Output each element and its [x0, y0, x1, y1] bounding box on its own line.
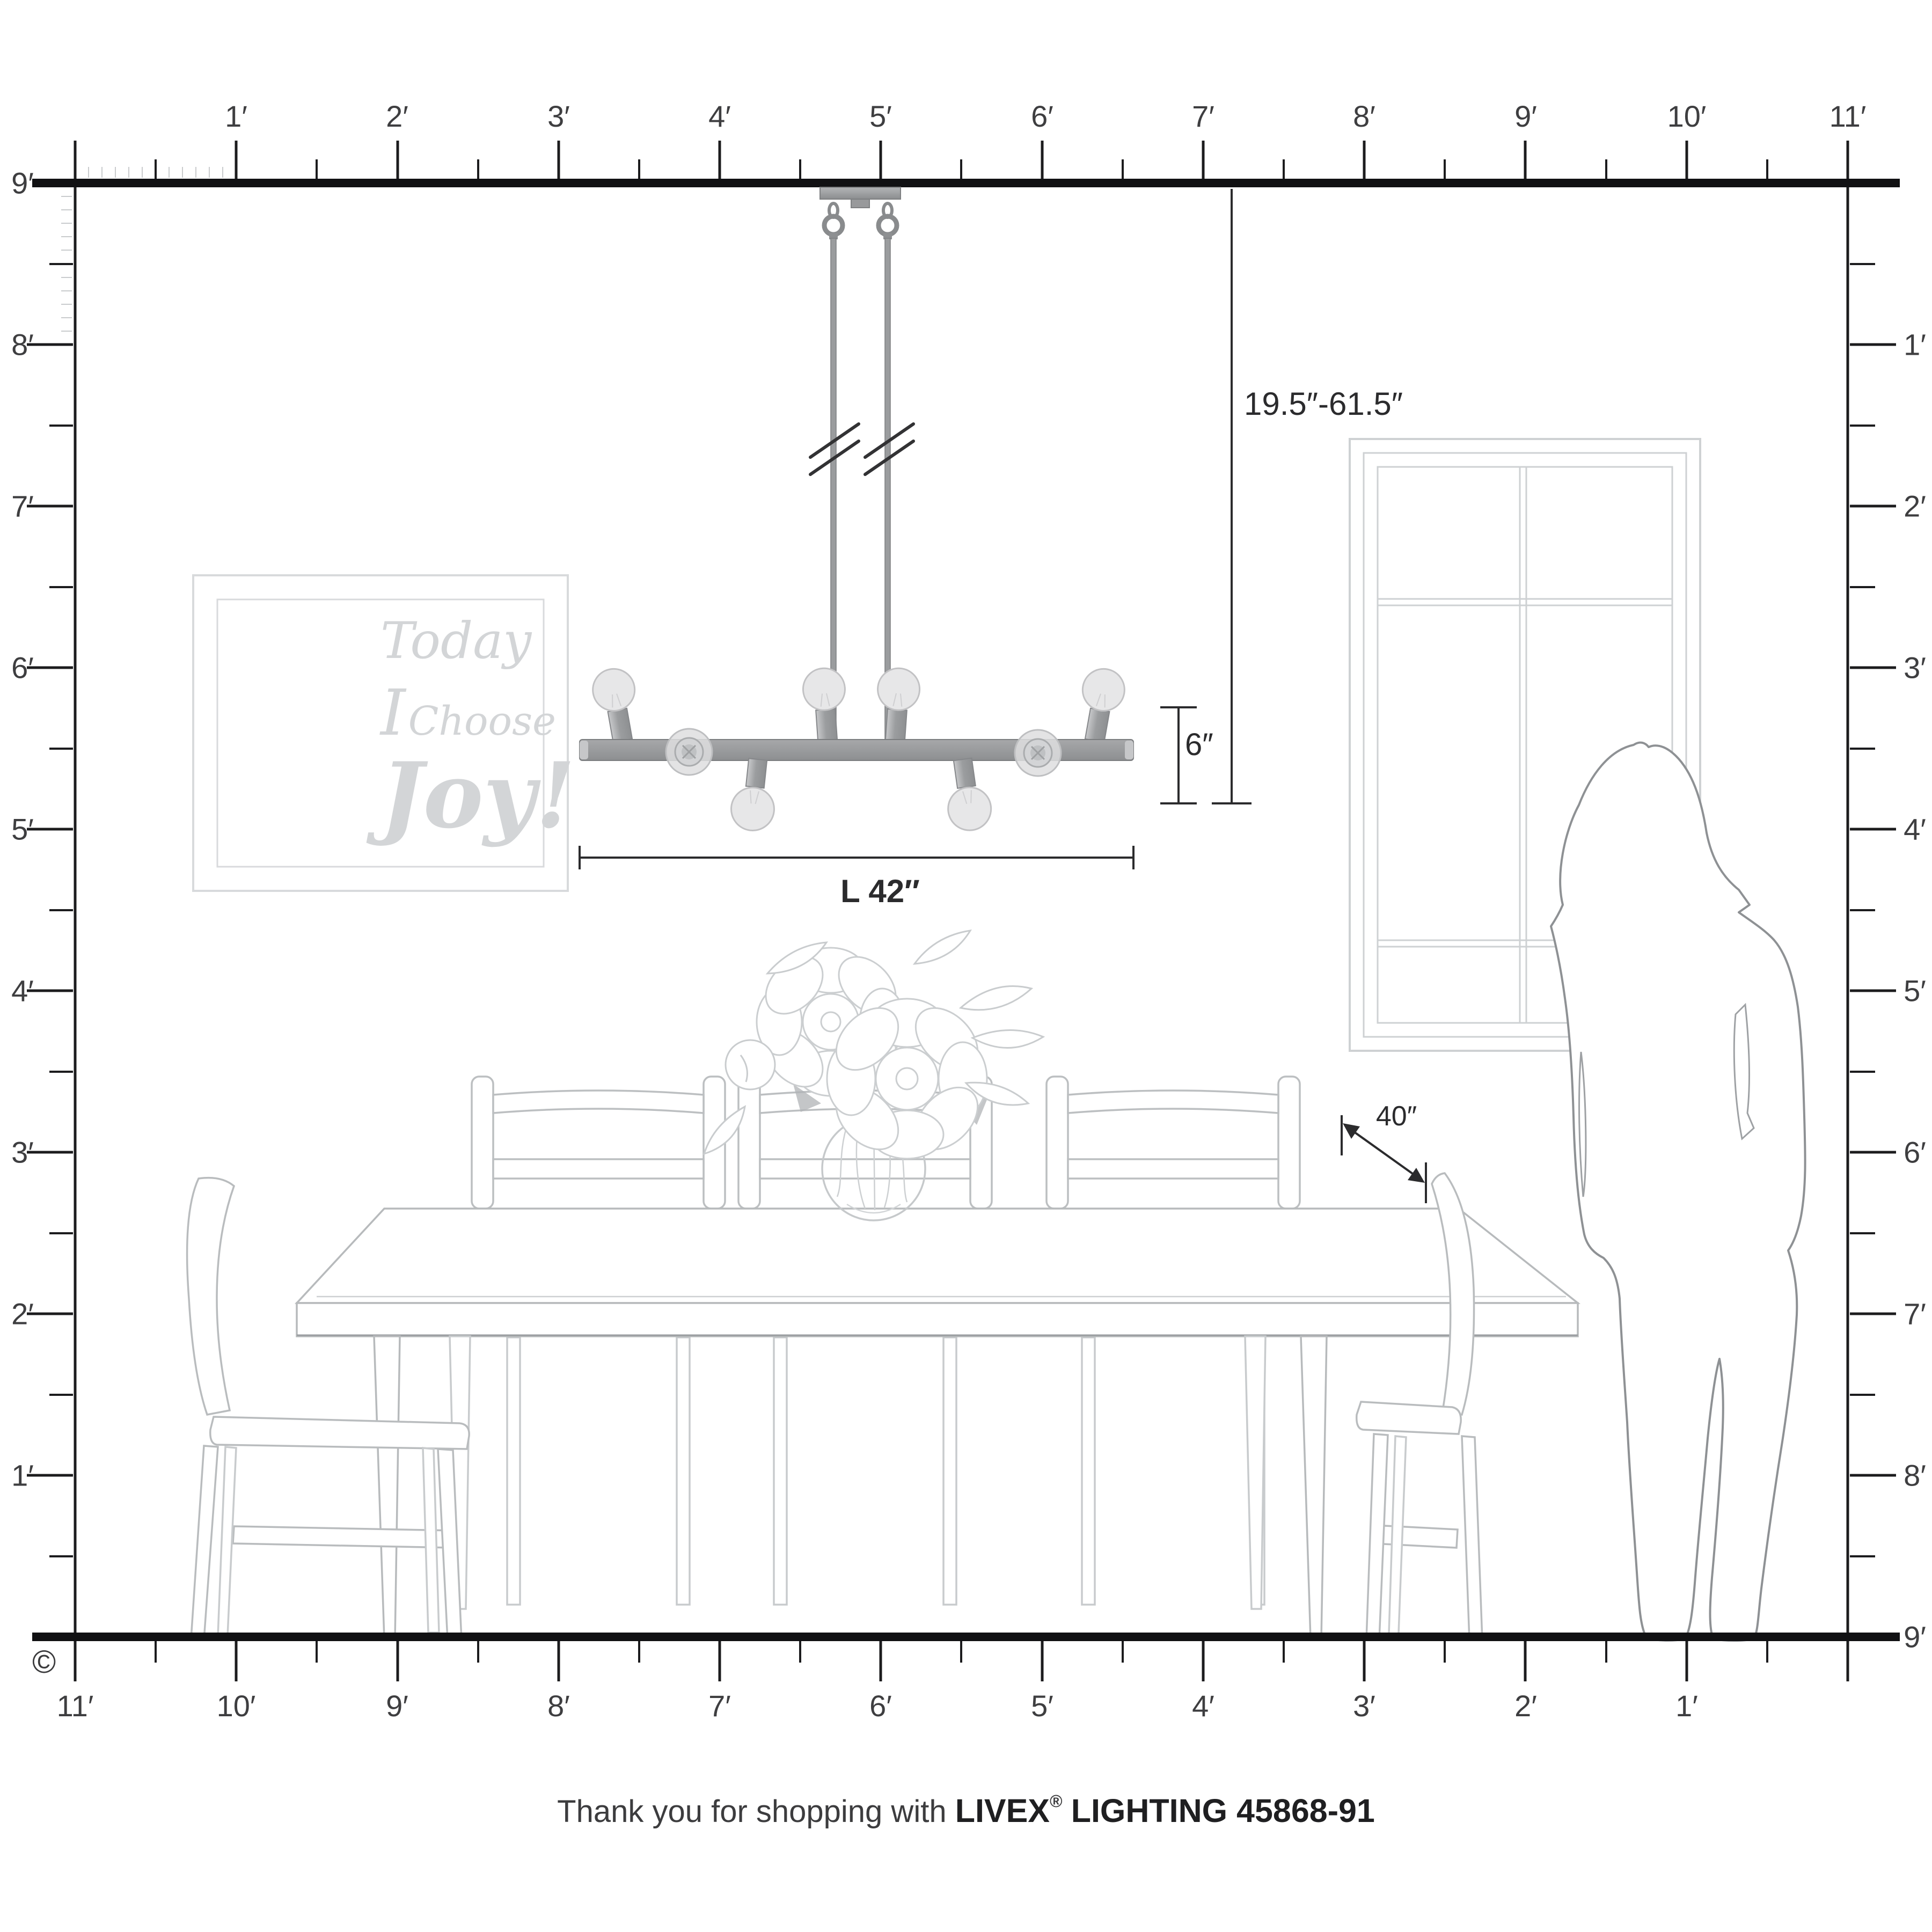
ruler-label: 8′ [11, 327, 34, 362]
ruler-label: 7′ [708, 1688, 731, 1723]
art-word-i: I [380, 676, 406, 750]
linear-chandelier [580, 187, 1133, 833]
front-facing-bulb [666, 729, 712, 775]
ruler-label: 3′ [547, 99, 570, 134]
hang-range-dimension [1212, 189, 1252, 803]
ruler-label: 7′ [1904, 1297, 1926, 1331]
ruler-label: 5′ [869, 99, 892, 134]
ruler-label: 2′ [1514, 1688, 1537, 1723]
ruler-label: 11′ [1829, 99, 1867, 134]
ruler-ticks-left [27, 264, 73, 1556]
fixture-length-label: L 42″ [840, 873, 920, 910]
up-bulb [1074, 665, 1128, 744]
ruler-label: 1′ [1904, 327, 1926, 362]
ruler-label: 8′ [547, 1688, 570, 1723]
up-bulb [802, 667, 848, 742]
down-bulb [729, 757, 779, 833]
back-chair-middle [738, 1077, 992, 1605]
ruler-label: 3′ [1904, 650, 1926, 685]
copyright-symbol: © [32, 1643, 56, 1680]
table-leg [1245, 1336, 1265, 1609]
hang-rings [824, 203, 897, 239]
ruler-label: 11′ [57, 1688, 94, 1723]
ruler-label: 9′ [1904, 1620, 1926, 1655]
ruler-ticks-top [75, 141, 1848, 179]
ruler-label: 10′ [217, 1688, 256, 1723]
woman-silhouette [1551, 743, 1805, 1641]
footer-message: Thank you for shopping with [557, 1794, 946, 1829]
ruler-label: 3′ [1353, 1688, 1375, 1723]
table-leg [1301, 1336, 1327, 1639]
hang-rod [831, 238, 836, 741]
ceiling-line [32, 179, 1900, 187]
ruler-ticks-bottom [75, 1641, 1848, 1681]
down-bulb [941, 756, 994, 833]
ruler-label: 9′ [11, 166, 34, 201]
ruler-label: 7′ [1192, 99, 1214, 134]
ruler-label: 5′ [1904, 974, 1926, 1008]
ruler-label: 6′ [869, 1688, 892, 1723]
ruler-label: 4′ [1904, 812, 1926, 847]
product-number: LIGHTING 45868-91 [1071, 1792, 1375, 1829]
table-apron [297, 1303, 1578, 1336]
floor-line [32, 1633, 1900, 1641]
back-chairs [472, 1077, 1300, 1605]
ruler-label: 1′ [225, 99, 247, 134]
up-bulb [874, 667, 921, 742]
ruler-ticks-right [1850, 264, 1896, 1556]
ruler-label: 2′ [11, 1297, 34, 1331]
fixture-height-label: 6″ [1185, 727, 1213, 763]
ruler-label: 2′ [1904, 489, 1926, 524]
front-facing-bulb [1015, 730, 1061, 776]
ruler-label: 6′ [1904, 1135, 1926, 1170]
ruler-label: 7′ [11, 489, 34, 524]
ruler-label: 5′ [11, 812, 34, 847]
art-word-choose: Choose [408, 698, 556, 744]
rod-break-marks [810, 424, 913, 474]
room-scale-diagram: 1′ 2′ 3′ 4′ 5′ 6′ 7′ 8′ 9′ 10′ 11′ 11′ 1… [0, 0, 1932, 1932]
ruler-label: 8′ [1353, 99, 1375, 134]
brand-name: LIVEX [955, 1792, 1050, 1829]
hang-rod [885, 238, 890, 741]
ruler-label: 9′ [1514, 99, 1537, 134]
ruler-label: 1′ [11, 1458, 34, 1493]
footer: Thank you for shopping with LIVEX® LIGHT… [557, 1791, 1375, 1829]
inch-scale-ticks [61, 167, 223, 331]
back-chair-left [472, 1077, 725, 1605]
ruler-label: 1′ [1675, 1688, 1698, 1723]
ruler-label: 5′ [1031, 1688, 1053, 1723]
table-leg [374, 1336, 400, 1639]
hang-range-label: 19.5″-61.5″ [1244, 385, 1403, 422]
ruler-label: 4′ [708, 99, 731, 134]
ruler-label: 9′ [386, 1688, 408, 1723]
table-depth-label: 40″ [1376, 1100, 1417, 1132]
ruler-label: 6′ [1031, 99, 1053, 134]
fixture-length-dimension [580, 846, 1133, 869]
ruler-label: 10′ [1667, 99, 1707, 134]
diagram-canvas [0, 0, 1932, 1932]
up-bulb [589, 665, 643, 744]
ruler-label: 4′ [11, 974, 34, 1008]
ruler-label: 6′ [11, 650, 34, 685]
ruler-label: 2′ [386, 99, 408, 134]
table-top [297, 1209, 1578, 1303]
ruler-label: 8′ [1904, 1458, 1926, 1493]
ruler-label: 3′ [11, 1135, 34, 1170]
dimension-lines [580, 189, 1426, 1203]
ruler-label: 4′ [1192, 1688, 1214, 1723]
registered-trademark-icon: ® [1050, 1791, 1063, 1811]
